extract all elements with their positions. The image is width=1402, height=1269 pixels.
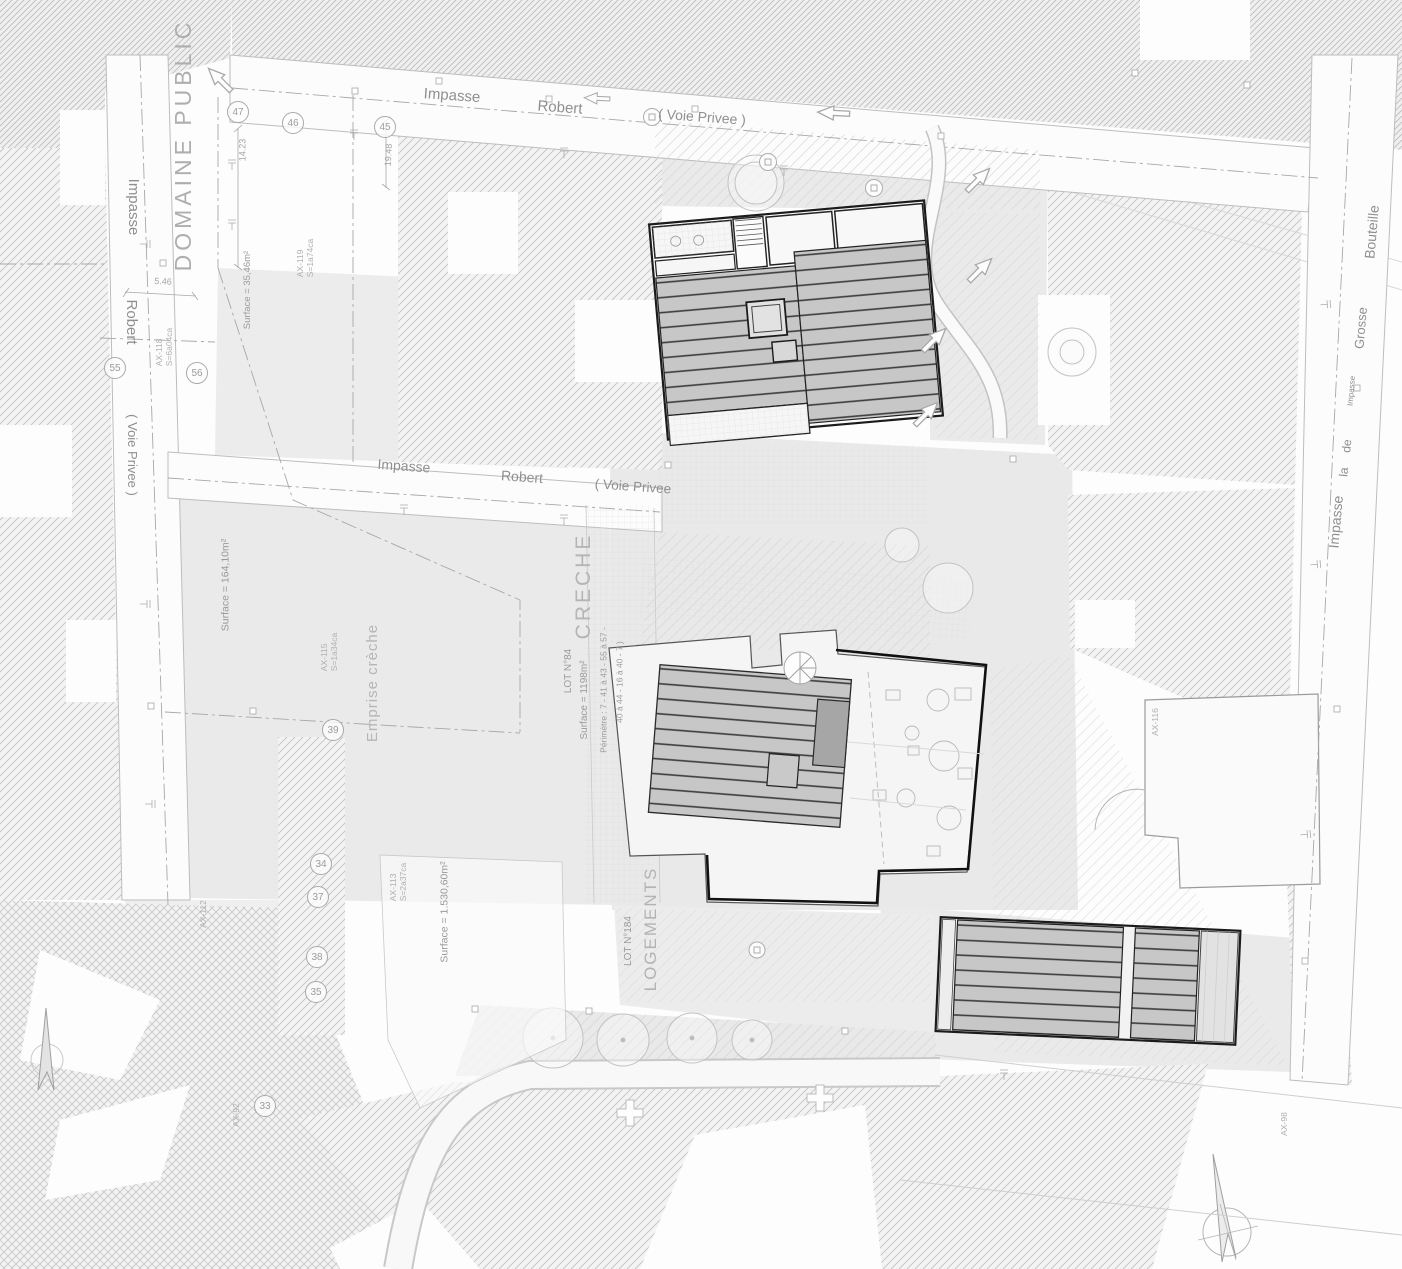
- boundary-marker-35: 35: [305, 981, 327, 1003]
- label-domaine-public: DOMAINE PUBLIC: [171, 19, 195, 272]
- boundary-marker-39: 39: [322, 719, 344, 741]
- street-left-voie-privee: ( Voie Privee ): [125, 414, 139, 496]
- dimension-14-23: 14.23: [238, 139, 247, 162]
- label-surface-parcel: Surface = 1.530,60m²: [439, 861, 450, 962]
- label-emprise-creche: Emprise crèche: [365, 624, 381, 742]
- street-middle-impasse: Impasse: [377, 457, 431, 475]
- street-left-robert: Robert: [123, 299, 139, 344]
- label-logements: LOGEMENTS: [642, 867, 660, 992]
- parcel-label-ax118: AX-118S=6a04ca: [155, 328, 175, 367]
- label-surface-creche: Surface = 1198m²: [580, 660, 591, 739]
- street-middle-robert: Robert: [501, 468, 544, 486]
- spiral-stair: [784, 652, 816, 684]
- label-creche: CRECHE: [573, 533, 595, 640]
- parcel-label-ax113: AX-113S=2a37ca: [389, 863, 409, 902]
- parcel-label-ax116: AX-116: [1151, 708, 1161, 736]
- boundary-marker-45: 45: [374, 116, 396, 138]
- label-lot-creche: LOT N°84: [564, 649, 575, 693]
- boundary-marker-34: 34: [310, 853, 332, 875]
- site-plan-drawing: DOMAINE PUBLIC CRECHE LOGEMENTS LOT N°84…: [0, 0, 1402, 1269]
- parcel-label-ax115: AX-115S=1a34ca: [320, 633, 340, 672]
- building-bottom: [936, 917, 1241, 1044]
- parcel-label-ax112: AX-112: [199, 900, 209, 928]
- boundary-marker-55: 55: [104, 357, 126, 379]
- dimension-5-46: 5.46: [154, 277, 172, 287]
- boundary-marker-33: 33: [254, 1095, 276, 1117]
- label-lot-logements: LOT N°184: [624, 916, 635, 966]
- boundary-marker-37: 37: [307, 886, 329, 908]
- parcel-label-ax92: AX-92: [232, 1103, 242, 1127]
- parcel-label-ax119: AX-119S=1a74ca: [296, 239, 316, 278]
- boundary-marker-46: 46: [282, 112, 304, 134]
- boundary-marker-56: 56: [186, 362, 208, 384]
- label-perimetre-2: 40 à 44 - 16 à 40 - 7 ): [616, 641, 625, 723]
- label-perimetre-1: Périmètre : 7 - 41 à 43 - 55 à 57 -: [600, 627, 609, 753]
- street-top-robert: Robert: [537, 99, 583, 118]
- building-top: [649, 200, 943, 445]
- label-surface-emprise: Surface = 164,10m²: [220, 539, 231, 632]
- site-plan-canvas: [0, 0, 1402, 1269]
- label-surface-small: Surface = 35,46m²: [243, 251, 253, 329]
- boundary-marker-47: 47: [227, 101, 249, 123]
- street-right-la: la: [1337, 467, 1350, 477]
- street-left-impasse: Impasse: [125, 179, 141, 236]
- boundary-marker-38: 38: [306, 946, 328, 968]
- dimension-19-48: 19.48: [384, 144, 395, 167]
- street-right-de: de: [1340, 439, 1354, 453]
- parcel-label-ax98: AX-98: [1280, 1112, 1290, 1136]
